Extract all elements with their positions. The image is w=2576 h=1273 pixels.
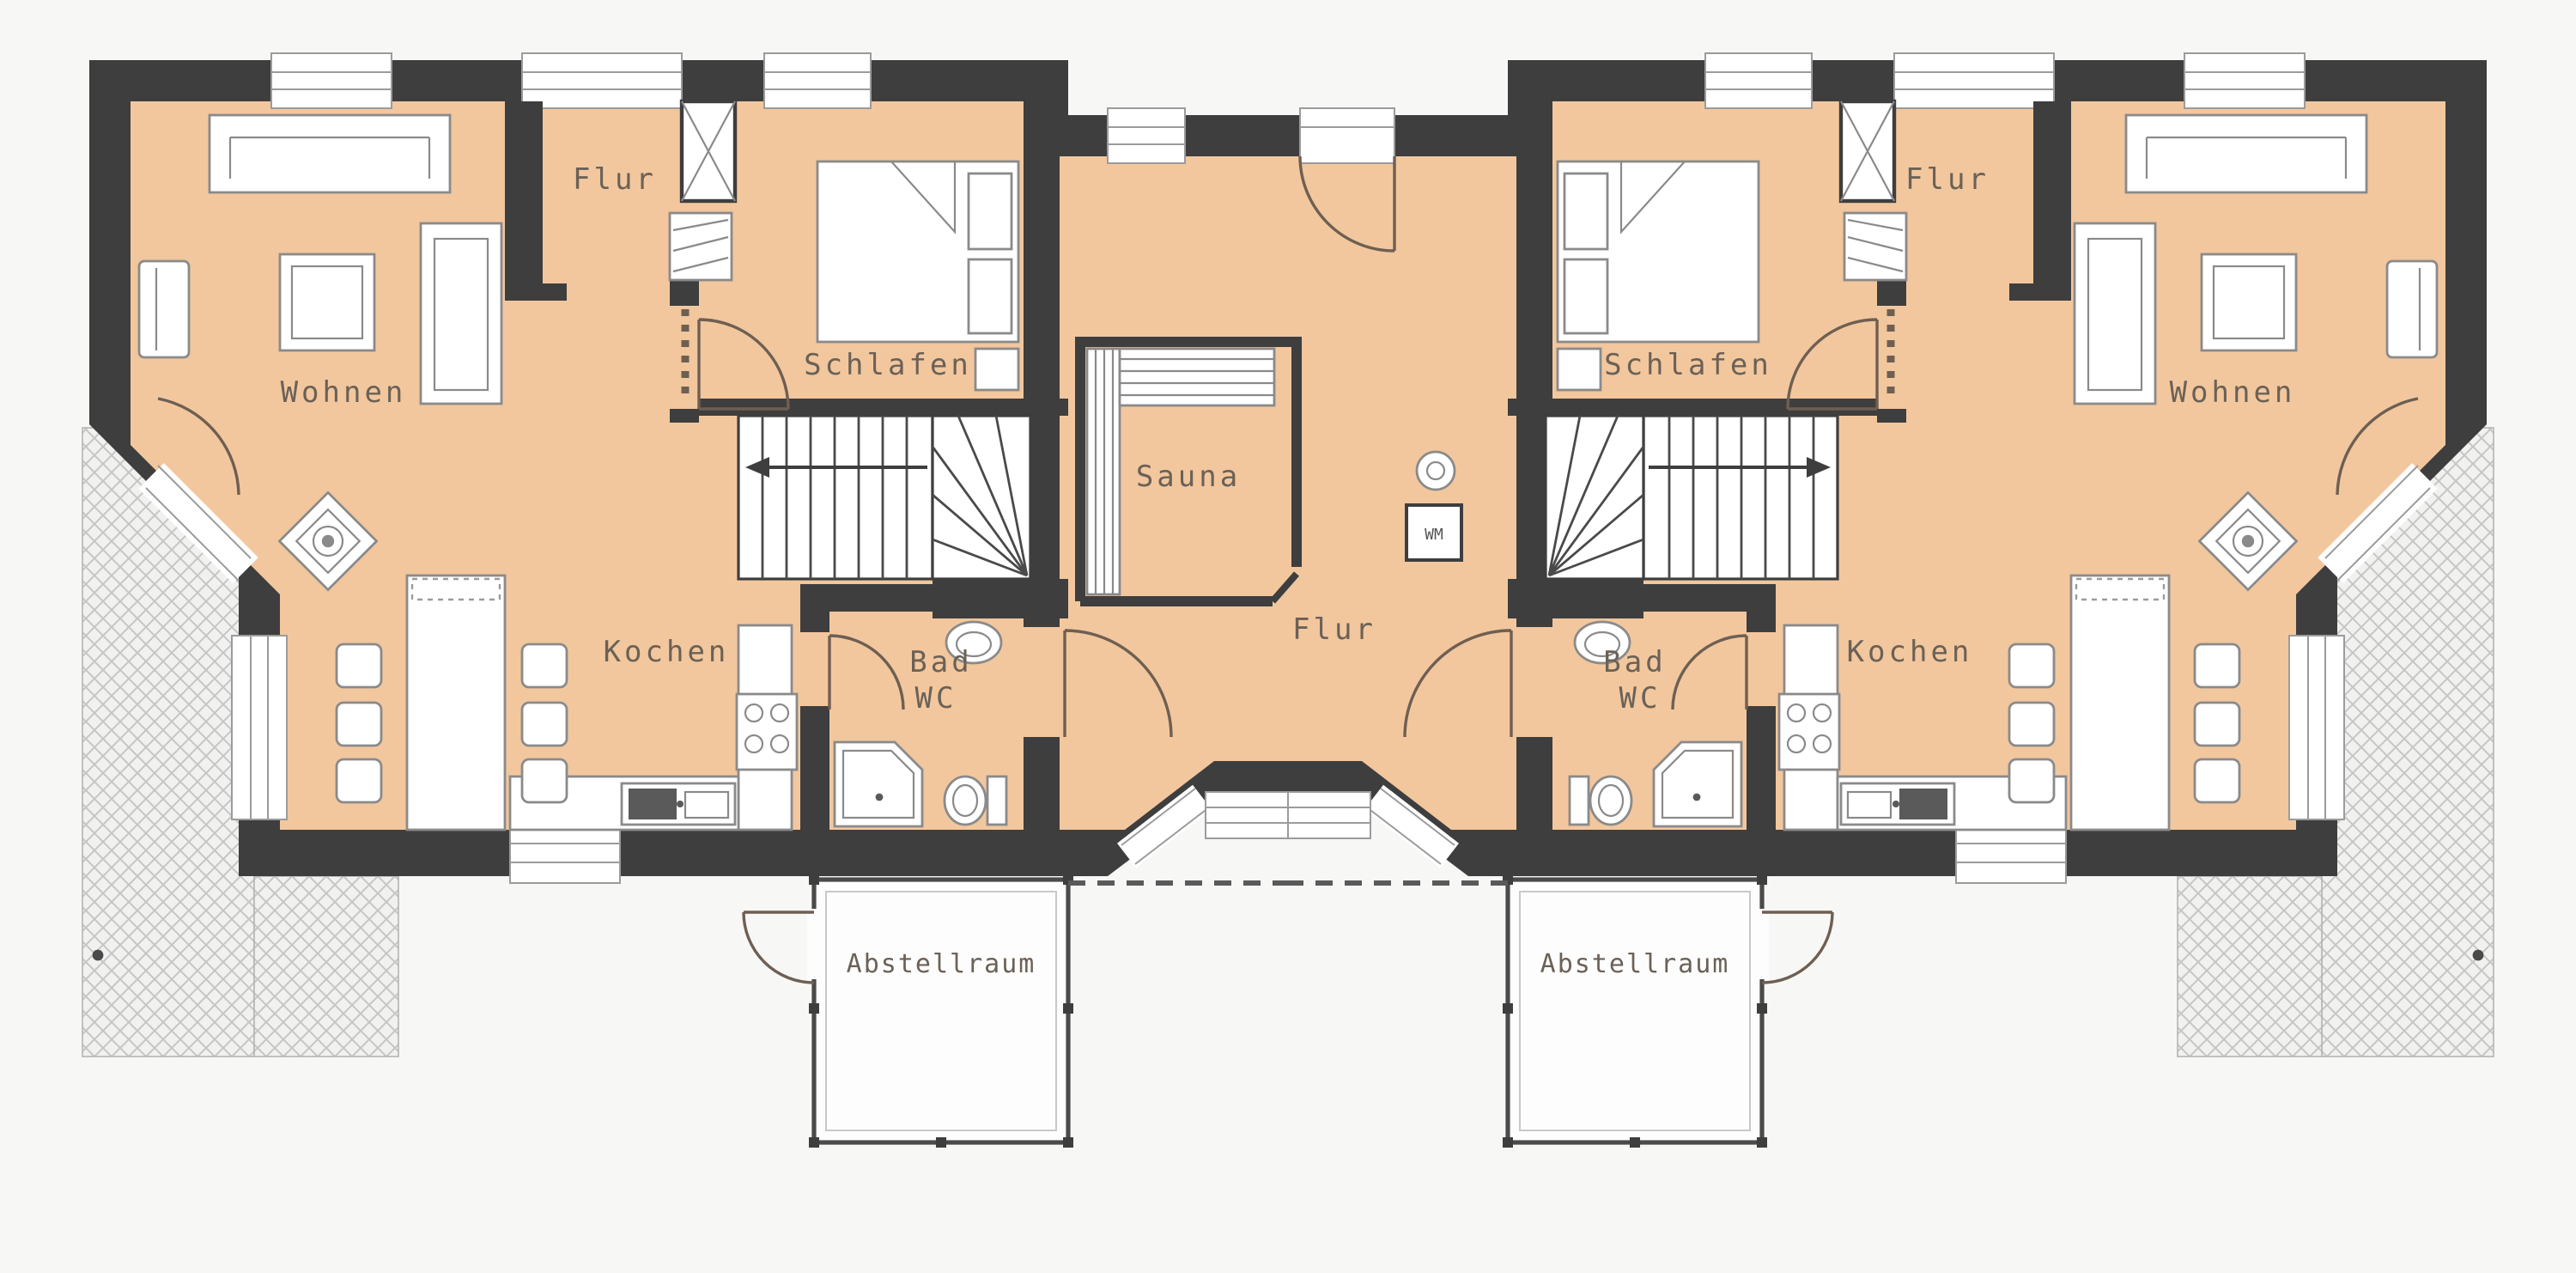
room-label-schlafen-right: Schlafen <box>1604 348 1772 382</box>
window <box>510 823 620 883</box>
room-label-sauna: Sauna <box>1136 460 1241 494</box>
room-label-flur-left: Flur <box>573 162 657 197</box>
room-label-wohnen-right: Wohnen <box>2170 375 2296 410</box>
hall-shelf <box>670 213 732 280</box>
room-label-wc-left: WC <box>915 681 957 716</box>
chimney-shaft-icon <box>682 101 735 201</box>
room-label-bad-right: Bad <box>1603 645 1666 679</box>
floor-plan-page: WM Wohnen Flur Schlafen Kochen Bad WC Ab… <box>0 0 2576 1273</box>
room-label-wohnen-left: Wohnen <box>281 375 407 410</box>
armchair <box>139 261 189 357</box>
double-bed <box>817 161 1018 342</box>
laundry-basin-icon <box>1417 452 1455 490</box>
window <box>232 636 287 819</box>
washing-machine-label: WM <box>1425 526 1443 544</box>
dining-table <box>407 576 505 830</box>
room-label-flur-right: Flur <box>1905 162 1990 197</box>
washing-machine-icon: WM <box>1406 505 1461 560</box>
sofa <box>210 115 450 192</box>
room-label-abstellraum-left: Abstellraum <box>847 949 1036 979</box>
terrace-drain-dot <box>93 950 104 961</box>
window <box>1108 108 1185 163</box>
window <box>271 53 392 108</box>
stove-icon <box>737 694 797 770</box>
annex-door-opening <box>807 909 823 979</box>
room-label-wc-right: WC <box>1619 681 1662 716</box>
room-label-kochen-right: Kochen <box>1847 635 1973 669</box>
window <box>522 53 682 108</box>
room-label-kochen-left: Kochen <box>604 635 730 669</box>
room-label-flur-center: Flur <box>1292 612 1376 647</box>
toilet-icon <box>945 777 1006 825</box>
room-label-abstellraum-right: Abstellraum <box>1540 949 1730 979</box>
kitchen-sink-icon <box>622 783 735 825</box>
porch-entry-door <box>1206 792 1370 838</box>
nightstand <box>975 349 1018 390</box>
room-label-bad-left: Bad <box>909 645 972 679</box>
staircase <box>738 416 1030 579</box>
window <box>764 53 871 108</box>
chaise <box>421 223 501 404</box>
floor-plan-drawing: WM Wohnen Flur Schlafen Kochen Bad WC Ab… <box>0 0 2576 1273</box>
room-label-schlafen-left: Schlafen <box>804 348 972 382</box>
coffee-table <box>280 254 374 350</box>
